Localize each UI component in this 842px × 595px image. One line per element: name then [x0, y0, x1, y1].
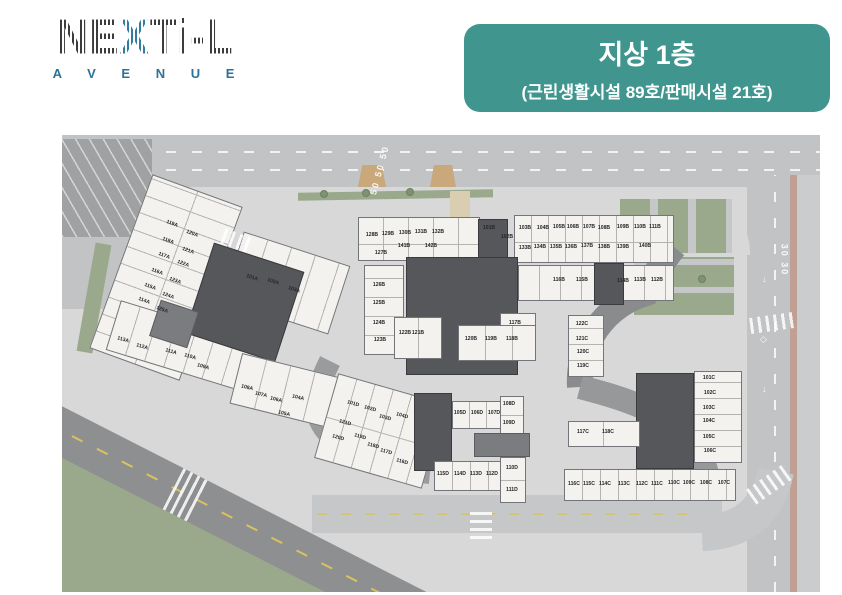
- unit-label: 130B: [399, 230, 411, 235]
- unit-label: 140B: [639, 243, 651, 248]
- unit-label: 108B: [598, 225, 610, 230]
- unit-label: 108D: [503, 401, 515, 406]
- unit-label: 121A: [181, 247, 194, 256]
- unit-label: 129B: [382, 231, 394, 236]
- unit-label: 105D: [454, 410, 466, 415]
- unit-label: 112D: [486, 471, 498, 476]
- unit-label: 111B: [649, 224, 661, 229]
- unit-label: 106C: [704, 448, 716, 453]
- unit-label: 101B: [483, 225, 495, 230]
- brand-part-2: Ti-L: [150, 10, 234, 65]
- unit-label: 113B: [634, 277, 646, 282]
- unit-label: 105B: [553, 224, 565, 229]
- unit-label: 118B: [506, 336, 518, 341]
- unit-label: 135B: [550, 244, 562, 249]
- unit-label: 115D: [437, 471, 449, 476]
- brand-part-accent: X: [119, 10, 149, 65]
- unit-label: 107B: [583, 224, 595, 229]
- unit-label: 111A: [165, 348, 178, 356]
- unit-label: 136B: [565, 244, 577, 249]
- unit-label: 134B: [534, 244, 546, 249]
- unit-label: 111C: [651, 481, 663, 486]
- unit-label: 101C: [703, 375, 715, 380]
- unit-label: 106A: [269, 396, 282, 404]
- unit-label: 104B: [537, 225, 549, 230]
- brand-wordmark: NEXTi-L: [56, 13, 233, 62]
- unit-label: 120D: [331, 434, 344, 442]
- brand-logo: NEXTi-L A V E N U E: [30, 16, 260, 81]
- unit-label: 114B: [617, 278, 629, 283]
- unit-label: 112A: [136, 343, 149, 351]
- unit-label: 112B: [651, 277, 663, 282]
- unit-label: 124A: [161, 292, 174, 301]
- floor-title-badge: 지상 1층 (근린생활시설 89호/판매시설 21호): [464, 24, 830, 112]
- unit-label: 137B: [581, 243, 593, 248]
- unit-label: 117C: [577, 429, 589, 434]
- unit-label: 109C: [683, 480, 695, 485]
- unit-label: 133B: [519, 245, 531, 250]
- unit-label: 123A: [168, 277, 181, 286]
- unit-label: 116C: [568, 481, 580, 486]
- unit-label: 121D: [338, 419, 351, 427]
- brand-subtitle: A V E N U E: [30, 66, 260, 81]
- unit-label: 119D: [354, 433, 367, 441]
- unit-label: 103B: [519, 225, 531, 230]
- unit-label: 123B: [374, 337, 386, 342]
- unit-label: 118C: [602, 429, 614, 434]
- unit-label: 114A: [138, 297, 151, 306]
- unit-label: 111D: [506, 487, 518, 492]
- unit-label: 109B: [617, 224, 629, 229]
- unit-label: 104C: [703, 418, 715, 423]
- unit-label: 131B: [415, 229, 427, 234]
- unit-label: 107A: [254, 391, 267, 399]
- unit-labels: 119A120A118A121A117A122A116A123A115A124A…: [62, 135, 820, 592]
- unit-label: 119B: [485, 336, 497, 341]
- site-plan: ↓ ↓ ◇ 50 50 5030 30 119A120A118A121A117A…: [62, 135, 820, 592]
- unit-label: 139B: [617, 244, 629, 249]
- unit-label: 127B: [375, 250, 387, 255]
- unit-label: 119C: [577, 363, 589, 368]
- unit-label: 120A: [185, 230, 198, 239]
- unit-label: 104D: [395, 412, 408, 420]
- unit-label: 128B: [366, 232, 378, 237]
- unit-label: 116B: [553, 277, 565, 282]
- unit-label: 115B: [576, 277, 588, 282]
- unit-label: 113D: [470, 471, 482, 476]
- unit-label: 118D: [367, 442, 380, 450]
- unit-label: 110B: [634, 224, 646, 229]
- unit-label: 126B: [373, 282, 385, 287]
- brand-part-1: NE: [56, 10, 119, 65]
- unit-label: 101D: [346, 400, 359, 408]
- unit-label: 132B: [432, 229, 444, 234]
- unit-label: 102C: [704, 390, 716, 395]
- unit-label: 106B: [567, 224, 579, 229]
- unit-label: 107D: [488, 410, 500, 415]
- unit-label: 106D: [471, 410, 483, 415]
- floor-title: 지상 1층: [598, 33, 695, 72]
- unit-label: 118A: [162, 237, 175, 246]
- unit-label: 125B: [373, 300, 385, 305]
- unit-label: 117B: [509, 320, 521, 325]
- unit-label: 120B: [465, 336, 477, 341]
- unit-label: 141B: [398, 243, 410, 248]
- unit-label: 104A: [291, 394, 304, 402]
- unit-label: 117A: [158, 252, 171, 261]
- unit-label: 108A: [240, 384, 253, 392]
- unit-label: 138B: [598, 244, 610, 249]
- unit-label: 122C: [576, 321, 588, 326]
- unit-label: 125A: [155, 306, 168, 315]
- unit-label: 110D: [506, 465, 518, 470]
- unit-label: 103C: [703, 405, 715, 410]
- unit-label: 103D: [378, 414, 391, 422]
- unit-label: 115C: [583, 481, 595, 486]
- unit-label: 116D: [396, 458, 409, 466]
- unit-label: 114D: [454, 471, 466, 476]
- unit-label: 112C: [636, 481, 648, 486]
- unit-label: 124B: [373, 320, 385, 325]
- unit-label: 109D: [503, 420, 515, 425]
- unit-label: 120C: [577, 349, 589, 354]
- unit-label: 109A: [196, 363, 209, 371]
- unit-label: 102B: [501, 234, 513, 239]
- unit-label: 102A: [266, 278, 279, 287]
- unit-label: 113C: [618, 481, 630, 486]
- unit-label: 108C: [700, 480, 712, 485]
- unit-label: 110C: [668, 480, 680, 485]
- unit-label: 115A: [144, 283, 157, 292]
- unit-label: 116A: [151, 268, 164, 277]
- unit-label: 119A: [166, 220, 179, 229]
- unit-label: 122B: [399, 330, 411, 335]
- unit-label: 142B: [425, 243, 437, 248]
- unit-label: 117D: [380, 448, 393, 456]
- unit-label: 121B: [412, 330, 424, 335]
- unit-label: 102D: [363, 405, 376, 413]
- floor-subtitle: (근린생활시설 89호/판매시설 21호): [522, 78, 773, 103]
- unit-label: 113A: [117, 336, 130, 344]
- unit-label: 110A: [184, 353, 197, 361]
- unit-label: 122A: [176, 260, 189, 269]
- unit-label: 107C: [718, 480, 730, 485]
- unit-label: 114C: [599, 481, 611, 486]
- unit-label: 121C: [576, 336, 588, 341]
- unit-label: 105C: [703, 434, 715, 439]
- unit-label: 103A: [287, 286, 300, 295]
- unit-label: 101A: [245, 274, 258, 283]
- unit-label: 105A: [277, 410, 290, 418]
